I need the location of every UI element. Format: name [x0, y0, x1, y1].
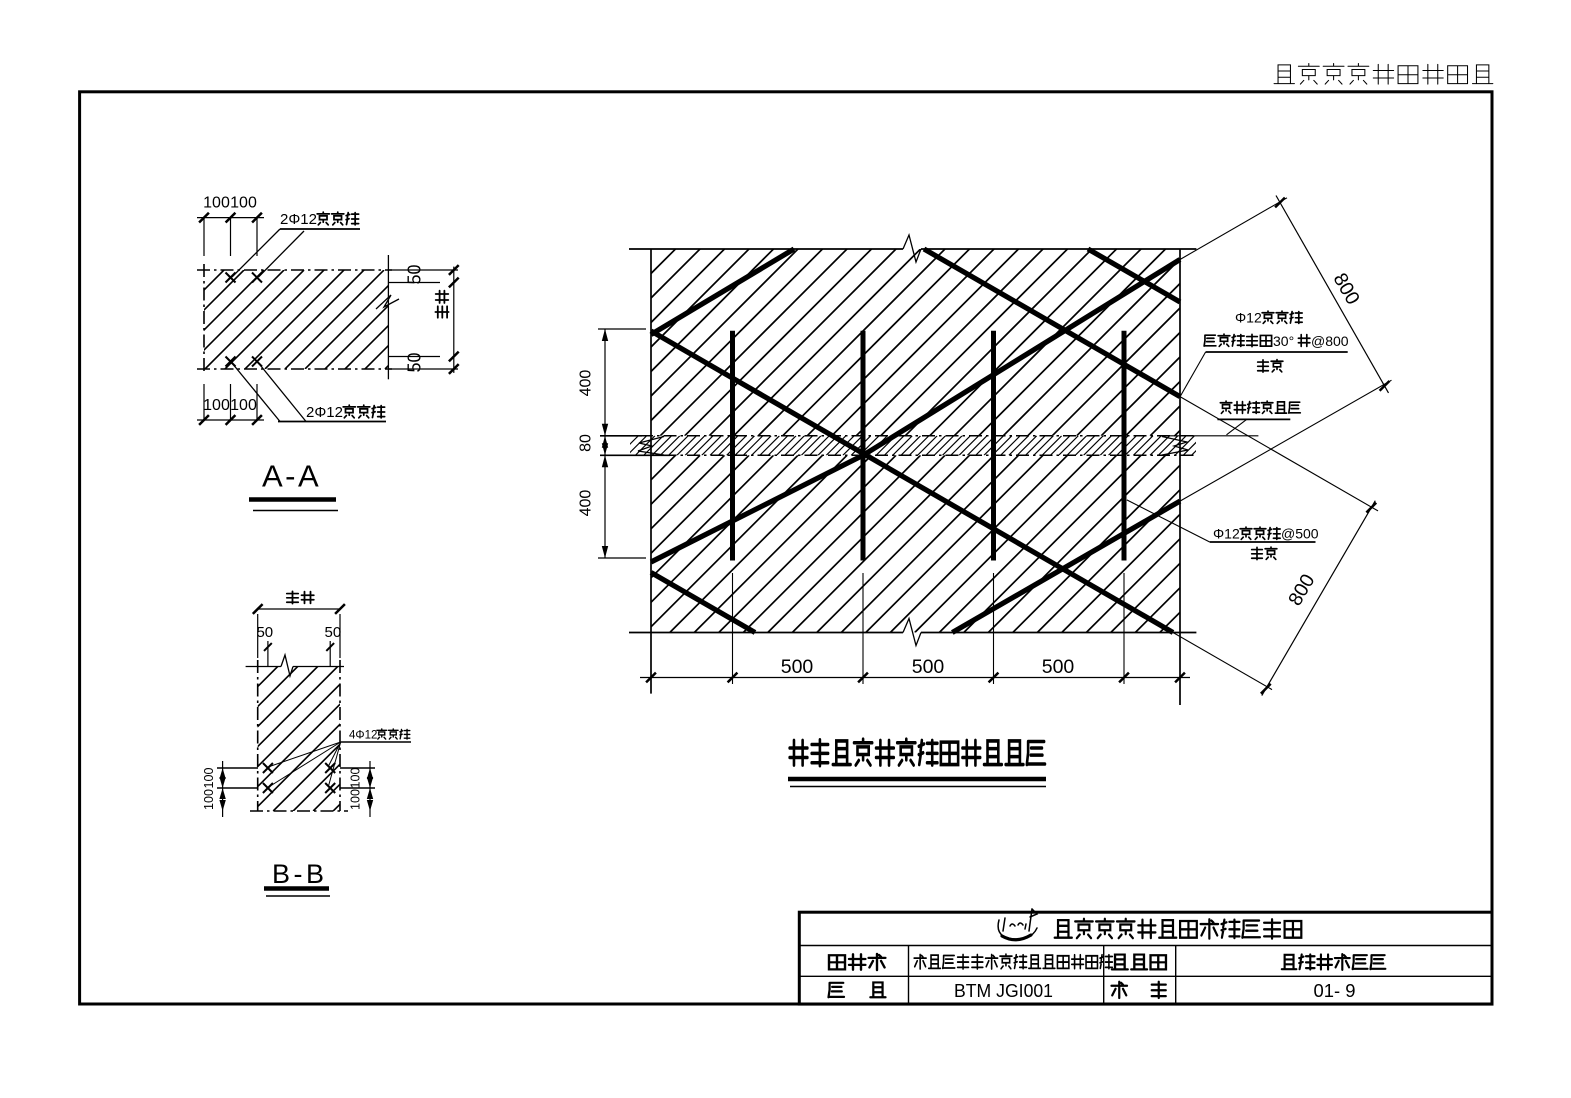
svg-text:50: 50 — [256, 624, 273, 641]
svg-text:2Φ12: 2Φ12 — [306, 404, 343, 421]
svg-text:80: 80 — [578, 434, 595, 452]
svg-text:500: 500 — [912, 656, 945, 678]
svg-text:50: 50 — [405, 264, 425, 284]
svg-text:30°: 30° — [1273, 333, 1294, 349]
svg-text:100: 100 — [230, 195, 257, 212]
svg-text:500: 500 — [1042, 656, 1075, 678]
svg-text:400: 400 — [578, 370, 595, 397]
svg-text:100: 100 — [230, 397, 257, 414]
svg-text:01- 9: 01- 9 — [1314, 980, 1356, 1001]
svg-text:50: 50 — [405, 352, 425, 372]
svg-text:4Φ12: 4Φ12 — [349, 730, 377, 742]
svg-text:100: 100 — [349, 768, 363, 789]
svg-text:A-A: A-A — [262, 459, 321, 494]
svg-text:@500: @500 — [1281, 526, 1319, 542]
svg-text:400: 400 — [578, 490, 595, 517]
svg-text:50: 50 — [325, 624, 342, 641]
svg-text:Φ12: Φ12 — [1235, 310, 1262, 326]
svg-text:Φ12: Φ12 — [1213, 526, 1240, 542]
svg-text:100: 100 — [202, 789, 216, 810]
svg-text:BTM JGI001: BTM JGI001 — [954, 980, 1053, 1001]
svg-text:500: 500 — [781, 656, 814, 678]
svg-text:100: 100 — [203, 195, 230, 212]
svg-text:100: 100 — [202, 768, 216, 789]
svg-text:100: 100 — [349, 789, 363, 810]
svg-text:2Φ12: 2Φ12 — [280, 211, 317, 228]
svg-text:100: 100 — [203, 397, 230, 414]
svg-text:B-B: B-B — [272, 859, 328, 889]
svg-text:@800: @800 — [1311, 333, 1349, 349]
